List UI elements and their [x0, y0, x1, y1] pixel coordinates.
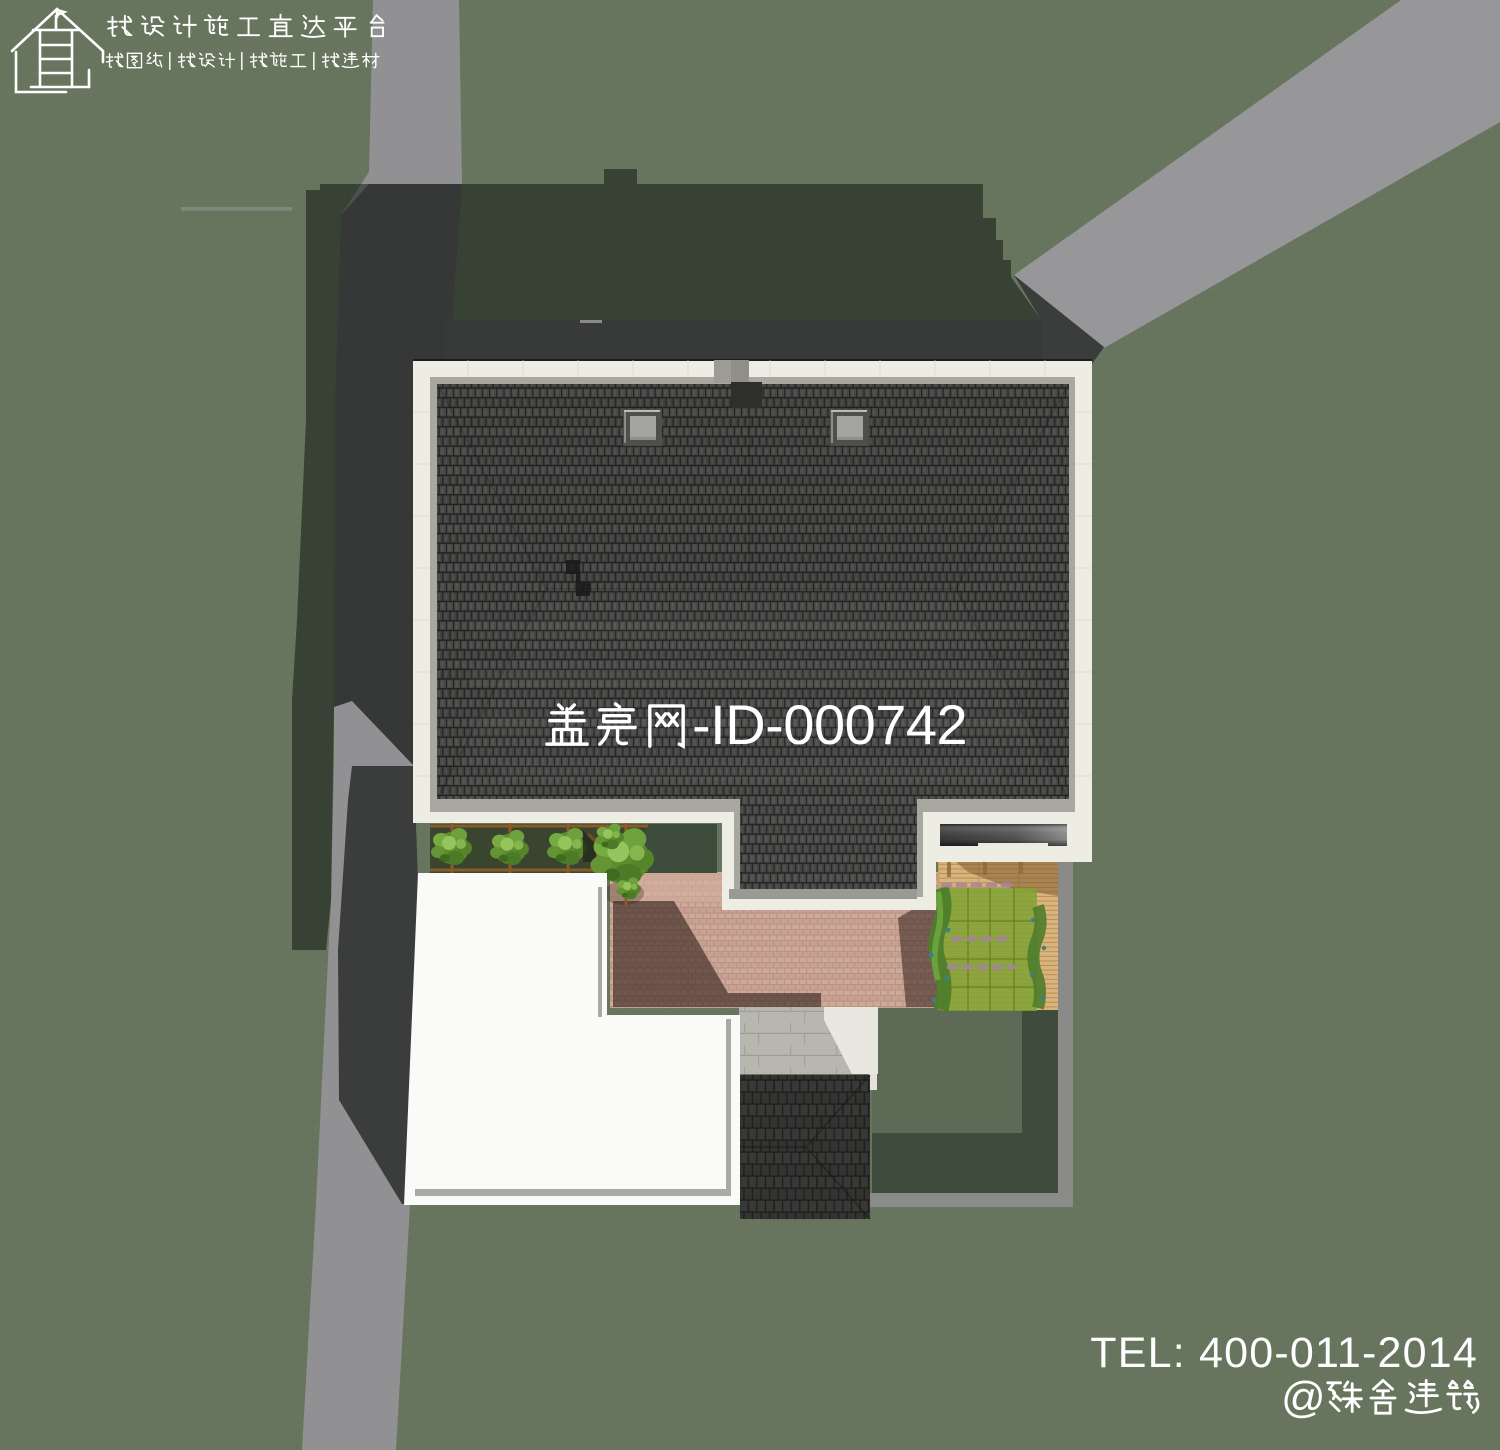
svg-text:TEL: 400-011-2014: TEL: 400-011-2014 — [1090, 1329, 1478, 1377]
svg-text:-ID-000742: -ID-000742 — [692, 693, 967, 756]
svg-text:@: @ — [1281, 1373, 1326, 1422]
